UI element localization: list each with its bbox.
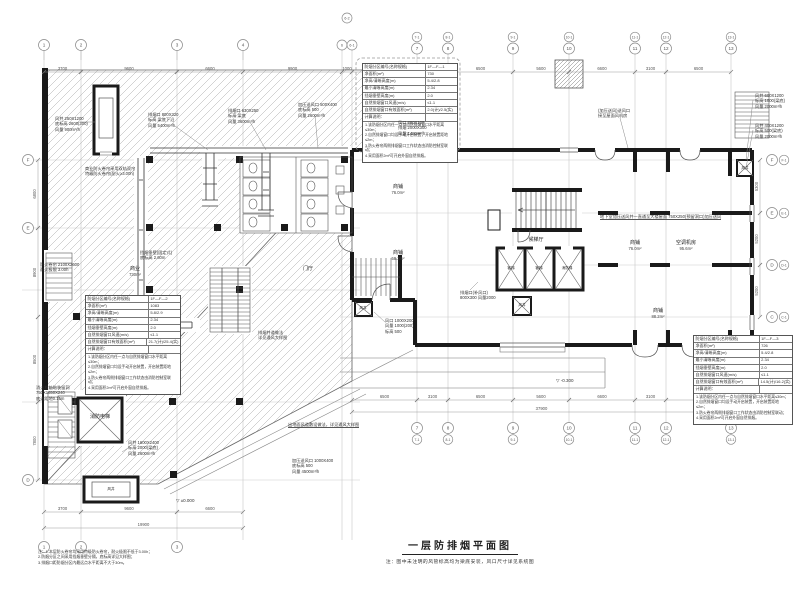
svg-text:10: 10 xyxy=(566,426,572,431)
grid-bubble: 10 xyxy=(564,43,575,54)
grid-bubble: 2 xyxy=(76,40,87,51)
svg-text:7-1: 7-1 xyxy=(415,438,420,442)
grid-bubble: 9 xyxy=(508,423,519,434)
grid-bubble: 8 xyxy=(443,423,454,434)
svg-text:11-1: 11-1 xyxy=(632,36,639,40)
dimension-text: 3700 xyxy=(58,506,68,511)
floor-plan-sheet: 123466-16-27-1777-18-1888-19-1999-110-11… xyxy=(0,0,800,600)
svg-text:12: 12 xyxy=(663,426,669,431)
grid-bubble: 6-1 xyxy=(347,40,357,50)
svg-text:F: F xyxy=(27,158,30,163)
elevator-top-left xyxy=(94,86,118,156)
svg-text:11-1: 11-1 xyxy=(632,438,639,442)
title-block: 一层防排烟平面图 注：图中未注明的风管标高均为梁底安装，风口尺寸详见系统图 xyxy=(330,536,590,565)
dimension-text: 8500 xyxy=(32,354,37,364)
grid-bubble: F xyxy=(767,155,778,166)
grid-bubble: 12 xyxy=(661,423,672,434)
svg-text:9-1: 9-1 xyxy=(511,36,516,40)
dimension-text: 6600 xyxy=(597,394,607,399)
dimension-text: 9600 xyxy=(124,506,134,511)
dimension-text: 6500 xyxy=(476,66,486,71)
grid-bubble: D xyxy=(767,260,778,271)
svg-text:7-1: 7-1 xyxy=(415,36,420,40)
svg-text:4: 4 xyxy=(242,43,245,48)
grid-bubble: F-1 xyxy=(779,155,789,165)
dimension-text: 6500 xyxy=(380,394,390,399)
grid-bubble: E xyxy=(23,223,34,234)
svg-text:1: 1 xyxy=(43,43,46,48)
svg-text:9: 9 xyxy=(512,46,515,51)
grid-bubble: 6 xyxy=(337,40,347,50)
svg-text:13-1: 13-1 xyxy=(728,36,735,40)
elevator-bank xyxy=(497,246,583,290)
dimension-text: 5200 xyxy=(754,286,759,296)
svg-text:13: 13 xyxy=(728,426,734,431)
grid-bubble: C-1 xyxy=(779,312,789,322)
svg-text:D-1: D-1 xyxy=(781,264,787,268)
core-stair xyxy=(512,190,582,230)
grid-bubble: 12 xyxy=(661,43,672,54)
grid-bubble: E xyxy=(767,208,778,219)
svg-text:7: 7 xyxy=(416,46,419,51)
svg-text:E-1: E-1 xyxy=(781,212,786,216)
svg-text:13: 13 xyxy=(728,46,734,51)
dimension-text: 6600 xyxy=(205,66,215,71)
dimension-text: 3700 xyxy=(58,66,68,71)
svg-text:7: 7 xyxy=(416,426,419,431)
svg-text:E: E xyxy=(26,226,29,231)
grid-bubble: 3 xyxy=(172,40,183,51)
grid-bubble: E-1 xyxy=(779,208,789,218)
leader-line xyxy=(620,118,628,148)
dimension-text: 5600 xyxy=(536,394,546,399)
svg-text:6-2: 6-2 xyxy=(344,17,349,21)
svg-text:10-1: 10-1 xyxy=(566,36,573,40)
dimension-text: 5300 xyxy=(754,181,759,191)
dimension-text: 3100 xyxy=(646,66,656,71)
svg-text:8-1: 8-1 xyxy=(446,438,451,442)
dimension-text: 6800 xyxy=(32,189,37,199)
svg-text:8: 8 xyxy=(447,46,450,51)
dimension-text: 8900 xyxy=(32,267,37,277)
grid-bubble: D-1 xyxy=(779,260,789,270)
dimension-text: 6600 xyxy=(205,506,215,511)
grid-bubble: 11 xyxy=(630,423,641,434)
svg-text:10: 10 xyxy=(566,46,572,51)
svg-text:8: 8 xyxy=(447,426,450,431)
dimension-text: 37900 xyxy=(536,406,548,411)
grid-bubble: 10-1 xyxy=(564,435,574,445)
grid-bubble: 13 xyxy=(726,423,737,434)
dimension-text: 6500 xyxy=(694,66,704,71)
dimension-text: 6500 xyxy=(694,394,704,399)
svg-text:F: F xyxy=(771,158,774,163)
grid-bubble: F xyxy=(23,155,34,166)
grid-bubble: 9-1 xyxy=(508,435,518,445)
grid-bubble: 7 xyxy=(412,43,423,54)
grid-bubble: 9-1 xyxy=(508,32,518,42)
svg-text:6: 6 xyxy=(341,44,343,48)
grid-bubble: 3 xyxy=(172,542,183,553)
grid-bubble: 4 xyxy=(238,40,249,51)
dimension-text: 6500 xyxy=(476,394,486,399)
grid-bubble: 7-1 xyxy=(412,435,422,445)
leader-line xyxy=(470,282,478,290)
svg-text:11: 11 xyxy=(633,426,638,431)
grid-bubble: 7 xyxy=(412,423,423,434)
dimension-text: 7800 xyxy=(32,436,37,446)
svg-text:10-1: 10-1 xyxy=(566,438,573,442)
svg-text:2: 2 xyxy=(80,43,83,48)
svg-text:8-1: 8-1 xyxy=(446,36,451,40)
dimension-text: 3100 xyxy=(428,394,438,399)
grid-bubble: 10 xyxy=(564,423,575,434)
grid-bubble: 10-1 xyxy=(564,32,574,42)
grid-bubble: 11-1 xyxy=(630,32,640,42)
svg-text:12-1: 12-1 xyxy=(663,438,670,442)
svg-text:9-1: 9-1 xyxy=(511,438,516,442)
svg-text:E: E xyxy=(770,211,773,216)
grid-bubble: 8-1 xyxy=(443,435,453,445)
grid-bubble: 8 xyxy=(443,43,454,54)
roof-vent-shaft xyxy=(555,60,583,88)
grid-bubble: 11-1 xyxy=(630,435,640,445)
dimension-text: 3100 xyxy=(428,66,438,71)
floor-plan-drawing: 123466-16-27-1777-18-1888-19-1999-110-11… xyxy=(0,0,800,600)
svg-text:12: 12 xyxy=(663,46,669,51)
grid-bubble: 9 xyxy=(508,43,519,54)
drawing-title: 一层防排烟平面图 xyxy=(402,537,518,555)
dimension-text: 19900 xyxy=(138,522,150,527)
svg-text:3: 3 xyxy=(176,545,179,550)
entrance-steps xyxy=(340,347,605,388)
dimension-text: 5200 xyxy=(754,234,759,244)
vent-shafts xyxy=(355,160,753,316)
dimension-text: 6600 xyxy=(597,66,607,71)
svg-text:F-1: F-1 xyxy=(781,159,786,163)
dimension-text: 6500 xyxy=(380,66,390,71)
grid-bubble: 6-2 xyxy=(342,13,352,23)
drawing-title-note: 注：图中未注明的风管标高均为梁底安装，风口尺寸详见系统图 xyxy=(330,558,590,565)
grid-bubble: 12-1 xyxy=(661,435,671,445)
svg-text:11: 11 xyxy=(633,46,638,51)
dimension-text: 1000 xyxy=(342,66,352,71)
svg-text:13-1: 13-1 xyxy=(728,438,735,442)
grid-bubble: 13 xyxy=(726,43,737,54)
svg-text:6-1: 6-1 xyxy=(349,44,354,48)
svg-text:C-1: C-1 xyxy=(781,316,787,320)
svg-text:9: 9 xyxy=(512,426,515,431)
corner-note-line: 3.排烟口距防烟分区内最远点水平距离不大于30m。 xyxy=(38,560,152,565)
grid-bubble: 1 xyxy=(39,40,50,51)
shaft-x-marks xyxy=(355,160,753,316)
grid-bubble: 13-1 xyxy=(726,32,736,42)
corner-notes: 注：1.本层防火卷帘均采用特级防火卷帘，耐火极限不低于3.00h； 2.防烟分区… xyxy=(38,549,152,565)
dimension-text: 3100 xyxy=(646,394,656,399)
grid-bubble: 7-1 xyxy=(412,32,422,42)
grid-bubble: 12-1 xyxy=(661,32,671,42)
grid-bubble: C xyxy=(767,312,778,323)
grid-bubble: 11 xyxy=(630,43,641,54)
grid-bubble: 13-1 xyxy=(726,435,736,445)
dimension-text: 5600 xyxy=(536,66,546,71)
svg-text:12-1: 12-1 xyxy=(663,36,670,40)
grid-bubble: 8-1 xyxy=(443,32,453,42)
dimension-text: 9600 xyxy=(124,66,134,71)
svg-text:3: 3 xyxy=(176,43,179,48)
dimension-text: 9900 xyxy=(288,66,298,71)
grid-bubble: D xyxy=(23,475,34,486)
